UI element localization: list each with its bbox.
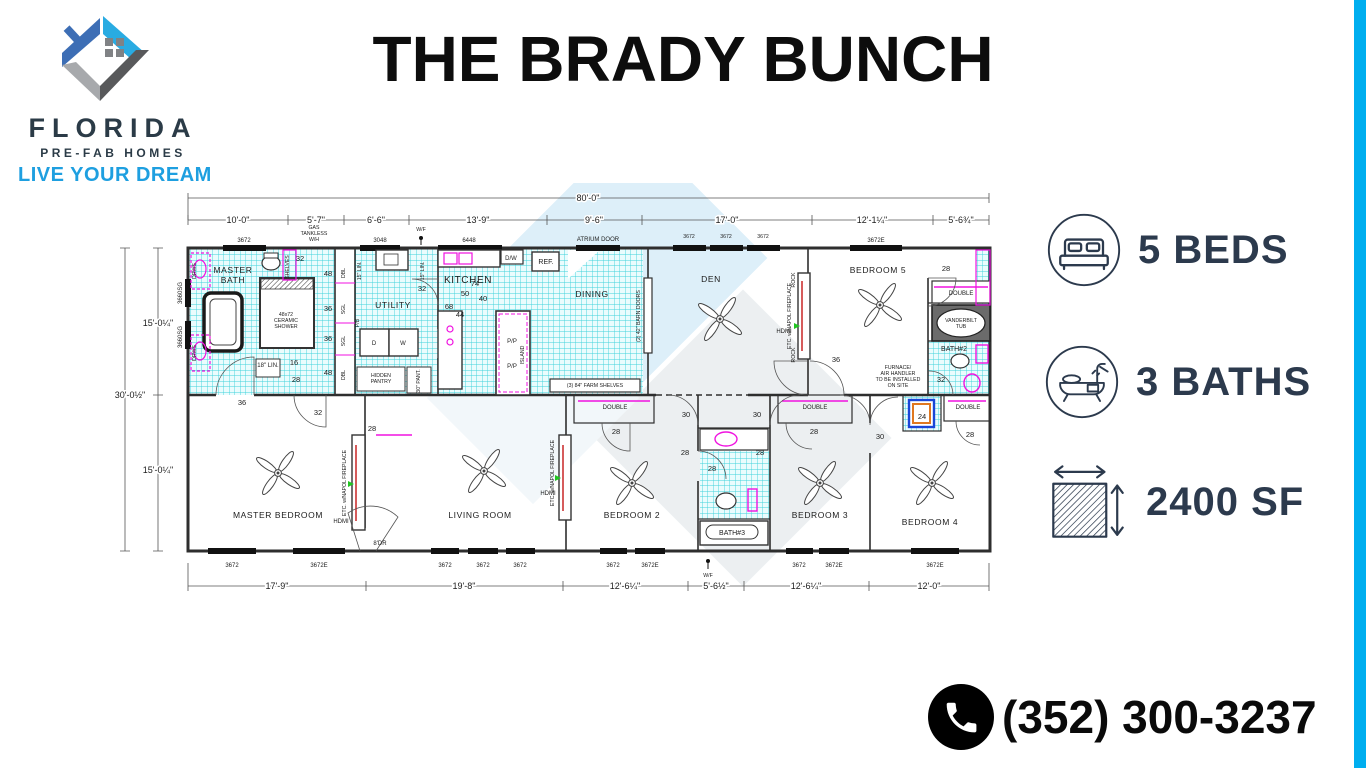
svg-text:3672E: 3672E — [310, 563, 327, 569]
svg-text:SGL: SGL — [341, 336, 347, 346]
phone-number: (352) 300-3237 — [1002, 690, 1317, 744]
svg-text:D: D — [372, 341, 377, 347]
floor-plan: 80'-0" 10'-0" 5'-7" 6'-6" 13'-9" 9'-6" 1… — [108, 183, 1013, 608]
svg-text:W: W — [400, 341, 406, 347]
svg-text:15" LIN.: 15" LIN. — [420, 262, 426, 281]
svg-text:28: 28 — [966, 430, 974, 439]
svg-text:3672: 3672 — [513, 563, 527, 569]
svg-text:W/F: W/F — [416, 227, 426, 233]
svg-text:12'-0": 12'-0" — [918, 581, 941, 591]
svg-text:MASTER: MASTER — [213, 265, 252, 275]
svg-text:ETC. w/NAPOL FIREPLACE: ETC. w/NAPOL FIREPLACE — [342, 449, 348, 516]
svg-text:28: 28 — [681, 448, 689, 457]
svg-text:30'-0½": 30'-0½" — [115, 390, 145, 400]
bathtub-icon — [1044, 344, 1120, 420]
svg-text:36: 36 — [238, 398, 246, 407]
svg-text:BATH#2: BATH#2 — [941, 346, 967, 353]
svg-text:50: 50 — [461, 289, 469, 298]
svg-text:36: 36 — [324, 304, 332, 313]
svg-text:12'-1¼": 12'-1¼" — [857, 215, 887, 225]
svg-text:19'-8": 19'-8" — [453, 581, 476, 591]
svg-text:28: 28 — [368, 424, 376, 433]
svg-text:3672E: 3672E — [641, 563, 658, 569]
svg-text:LIVING ROOM: LIVING ROOM — [448, 510, 511, 520]
svg-text:3672E: 3672E — [926, 563, 943, 569]
svg-text:32: 32 — [296, 254, 304, 263]
baths-label: 3 BATHS — [1136, 360, 1311, 405]
svg-text:3672E: 3672E — [867, 238, 884, 244]
svg-text:P/B: P/B — [355, 318, 361, 327]
svg-text:3048: 3048 — [373, 238, 387, 244]
svg-text:SGL: SGL — [341, 304, 347, 314]
svg-text:30: 30 — [682, 410, 690, 419]
svg-text:28: 28 — [612, 427, 620, 436]
svg-text:3672E: 3672E — [825, 563, 842, 569]
svg-text:36: 36 — [324, 334, 332, 343]
svg-text:3660SG: 3660SG — [178, 326, 184, 348]
svg-text:28: 28 — [708, 464, 716, 473]
svg-text:17'-0": 17'-0" — [716, 215, 739, 225]
svg-text:BEDROOM 2: BEDROOM 2 — [604, 510, 660, 520]
svg-text:W/F: W/F — [703, 573, 713, 579]
phone-icon — [928, 684, 994, 750]
svg-text:44: 44 — [456, 310, 464, 319]
svg-text:3660SG: 3660SG — [178, 282, 184, 304]
svg-text:ISLAND: ISLAND — [520, 345, 526, 364]
svg-text:HDMI: HDMI — [540, 491, 556, 497]
svg-text:28: 28 — [942, 264, 950, 273]
page-title: THE BRADY BUNCH — [0, 22, 1366, 96]
bed-icon — [1046, 212, 1122, 288]
svg-text:(3) 84" FARM SHELVES: (3) 84" FARM SHELVES — [567, 383, 624, 389]
svg-text:DINING: DINING — [575, 289, 608, 299]
svg-text:DBL: DBL — [341, 268, 347, 278]
svg-text:TUB: TUB — [956, 324, 967, 330]
svg-text:REF.: REF. — [538, 259, 553, 266]
svg-text:68: 68 — [445, 302, 453, 311]
svg-text:3672: 3672 — [606, 563, 620, 569]
svg-text:P/P: P/P — [507, 339, 517, 345]
svg-text:HDMI: HDMI — [776, 329, 792, 335]
svg-text:12'-6¼": 12'-6¼" — [610, 581, 640, 591]
svg-text:9'-6": 9'-6" — [585, 215, 603, 225]
svg-text:30: 30 — [753, 410, 761, 419]
svg-text:15'-0¼": 15'-0¼" — [143, 318, 173, 328]
brand-name: FLORIDA — [18, 113, 208, 144]
svg-text:DOUBLE: DOUBLE — [603, 405, 628, 411]
svg-text:3672: 3672 — [476, 563, 490, 569]
svg-text:80'-0": 80'-0" — [577, 193, 600, 203]
svg-text:BEDROOM 3: BEDROOM 3 — [792, 510, 848, 520]
svg-text:(2) 42" BARN DOORS: (2) 42" BARN DOORS — [636, 290, 642, 342]
svg-text:W/H: W/H — [309, 237, 319, 243]
svg-text:DOUBLE: DOUBLE — [949, 291, 974, 297]
svg-text:DOUBLE: DOUBLE — [803, 405, 828, 411]
svg-text:13'-9": 13'-9" — [467, 215, 490, 225]
svg-text:ON SITE: ON SITE — [888, 383, 909, 389]
svg-text:BATH: BATH — [221, 275, 245, 285]
accent-bar — [1354, 0, 1366, 768]
svg-text:16: 16 — [290, 358, 298, 367]
beds-label: 5 BEDS — [1138, 228, 1289, 273]
svg-text:SHELVES: SHELVES — [285, 255, 291, 279]
stat-baths: 3 BATHS — [1044, 344, 1311, 420]
svg-text:5'-6¾": 5'-6¾" — [948, 215, 973, 225]
svg-text:DEN: DEN — [701, 274, 721, 284]
svg-text:18" LIN.: 18" LIN. — [257, 363, 279, 369]
svg-text:48: 48 — [324, 368, 332, 377]
svg-text:3672: 3672 — [792, 563, 806, 569]
svg-text:32: 32 — [937, 375, 945, 384]
svg-text:5'-6½": 5'-6½" — [703, 581, 728, 591]
svg-text:BEDROOM 4: BEDROOM 4 — [902, 517, 958, 527]
svg-text:10'-0": 10'-0" — [227, 215, 250, 225]
svg-text:40: 40 — [479, 294, 487, 303]
svg-text:30" PANT.: 30" PANT. — [416, 369, 422, 392]
area-label: 2400 SF — [1146, 480, 1304, 525]
stat-beds: 5 BEDS — [1046, 212, 1289, 288]
svg-text:DRWS: DRWS — [192, 263, 198, 279]
svg-text:15" LIN.: 15" LIN. — [357, 262, 363, 281]
svg-text:28: 28 — [292, 375, 300, 384]
svg-text:3672: 3672 — [683, 234, 695, 240]
area-hatch-icon — [1046, 460, 1130, 544]
svg-text:BEDROOM 5: BEDROOM 5 — [850, 265, 906, 275]
svg-text:48: 48 — [324, 269, 332, 278]
svg-text:3672: 3672 — [237, 238, 251, 244]
phone-contact: (352) 300-3237 — [928, 684, 1317, 750]
svg-text:3672: 3672 — [720, 234, 732, 240]
svg-text:ETC. w/NAPOL FIREPLACE: ETC. w/NAPOL FIREPLACE — [787, 282, 793, 349]
svg-text:6'-6": 6'-6" — [367, 215, 385, 225]
svg-text:DOUBLE: DOUBLE — [956, 405, 981, 411]
stat-area: 2400 SF — [1046, 460, 1304, 544]
svg-text:32: 32 — [418, 284, 426, 293]
svg-text:DBL: DBL — [341, 370, 347, 380]
svg-text:DRWS: DRWS — [192, 345, 198, 361]
svg-text:30: 30 — [876, 432, 884, 441]
svg-text:28: 28 — [810, 427, 818, 436]
svg-text:MASTER BEDROOM: MASTER BEDROOM — [233, 510, 323, 520]
svg-text:24: 24 — [918, 412, 926, 421]
svg-text:3672: 3672 — [757, 234, 769, 240]
svg-text:6448: 6448 — [462, 238, 476, 244]
svg-text:8'DR: 8'DR — [373, 541, 387, 547]
svg-text:28: 28 — [756, 448, 764, 457]
svg-text:UTILITY: UTILITY — [375, 300, 411, 310]
svg-text:17'-9": 17'-9" — [266, 581, 289, 591]
svg-text:36: 36 — [832, 355, 840, 364]
svg-text:5'-7": 5'-7" — [307, 215, 325, 225]
brand-subtitle: PRE-FAB HOMES — [18, 146, 208, 160]
svg-text:SHOWER: SHOWER — [274, 324, 298, 330]
svg-text:D/W: D/W — [505, 256, 517, 262]
svg-text:3672: 3672 — [438, 563, 452, 569]
svg-text:12'-6¼": 12'-6¼" — [791, 581, 821, 591]
svg-text:32: 32 — [314, 408, 322, 417]
svg-text:P/P: P/P — [507, 364, 517, 370]
svg-text:ATRIUM DOOR: ATRIUM DOOR — [577, 237, 620, 243]
svg-text:HDMI: HDMI — [333, 519, 349, 525]
svg-text:BATH#3: BATH#3 — [719, 530, 745, 537]
svg-text:15'-0¼": 15'-0¼" — [143, 465, 173, 475]
svg-text:74: 74 — [471, 279, 479, 288]
svg-text:3672: 3672 — [225, 563, 239, 569]
svg-text:PANTRY: PANTRY — [371, 379, 392, 385]
svg-text:KITCHEN: KITCHEN — [444, 275, 492, 286]
